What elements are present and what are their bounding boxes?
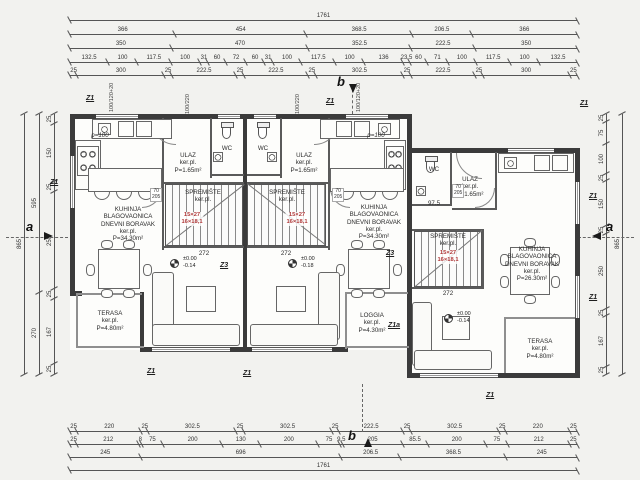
section-arrow-a-left <box>44 232 53 240</box>
glass-door-living-left <box>152 347 230 352</box>
dim-chain-left-2: 595270 <box>29 114 40 375</box>
tag-z1-west: Z1 <box>50 179 58 186</box>
dim-chain-top-overall: 1761 <box>70 10 578 21</box>
coffee-table-unit1 <box>186 286 216 312</box>
room-label-living-unit2: KUHINJA BLAGOVAONICA DNEVNI BORAVAK ker.… <box>339 204 409 241</box>
sofa-unit3-horizontal <box>414 350 492 370</box>
sink-wc-unit2 <box>267 152 277 162</box>
sink-wc-unit3 <box>416 186 426 196</box>
room-label-ulaz-unit2: ULAZ ker.pl. P=1.65m² <box>282 152 326 174</box>
chair <box>524 295 536 304</box>
door-size-tag-unit2: 70 205 <box>332 188 344 202</box>
section-letter-a-left: a <box>26 219 33 234</box>
unit1-wc-south-wall <box>210 174 244 176</box>
level-marker-unit1 <box>170 259 179 268</box>
chair <box>86 264 95 276</box>
chair <box>373 240 385 249</box>
dim-chain-right-detail: 257510025150252502516725 <box>596 114 607 375</box>
tag-z1-bottom-mid: Z1 <box>243 370 251 377</box>
wall-terrace-east <box>140 292 144 352</box>
dining-table-unit2 <box>348 249 390 289</box>
tag-z3-right: Z3 <box>386 250 394 257</box>
door-size-tag-unit1: 70 205 <box>150 188 162 202</box>
section-arrow-a-right <box>592 232 601 240</box>
kitchen-sink-unit3 <box>504 157 517 169</box>
stairs-unit2-step-note: 15×27 16×18,1 <box>285 212 308 226</box>
room-label-living-unit1: KUHINJA BLAGOVAONICA DNEVNI BORAVAK ker.… <box>93 206 163 243</box>
chair <box>101 289 113 298</box>
dim-chain-right-overall: 865 <box>612 114 623 375</box>
dim-chain-left-overall: 865 <box>14 114 25 375</box>
dim-chain-bottom-walls: 2522025302.525302.525222.525302.52522025 <box>70 421 578 432</box>
room-label-wc-unit1: WC <box>222 145 232 152</box>
tag-z1-top-left: Z1 <box>86 95 94 102</box>
unit1-stair-south-wall <box>162 246 244 248</box>
dim-chain-top-2: 366454368.5206.5366 <box>70 24 578 35</box>
dining-group-unit2 <box>336 240 402 298</box>
sofa-unit1-horizontal <box>152 324 240 346</box>
section-line-b-bottom <box>362 384 363 432</box>
unit2-stair-south-wall <box>247 246 329 248</box>
glass-door-living-mid <box>252 347 332 352</box>
dining-group-unit1 <box>86 240 152 298</box>
window-size-rotated-2: 100/220 <box>186 86 192 114</box>
chair <box>351 289 363 298</box>
dim-chain-bottom-3: 245696206.5368.5245 <box>70 447 578 458</box>
sink-wc-unit1 <box>213 152 223 162</box>
kitchen-appliance-unit3-b <box>552 155 568 171</box>
level-text-unit1: ±0.00 -0.14 <box>183 256 197 269</box>
stairs-unit1-step-note: 15×27 16×18,1 <box>180 212 203 226</box>
kitchen-appliance-unit3-a <box>534 155 550 171</box>
tag-z1-top-mid: Z1 <box>326 98 334 105</box>
toilet-unit1 <box>222 126 231 139</box>
room-label-living-unit3: KUHINJA BLAGOVAONICA DNEVNI BORAVAK ker.… <box>497 246 567 283</box>
section-line-a-left <box>6 237 68 238</box>
room-label-ulaz-unit1: ULAZ ker.pl. P=1.65m² <box>166 152 210 174</box>
section-letter-b-top: b <box>337 74 345 89</box>
terrace-right-west-wall <box>504 317 506 373</box>
dim-chain-top-walls: 2530025222.525222.525302.525222.52530025 <box>70 65 578 76</box>
terrace-left-south-wall <box>76 346 144 348</box>
unit3-stair-south-wall <box>412 287 484 289</box>
sofa-unit2-horizontal <box>250 324 338 346</box>
tag-z1-top-right: Z1 <box>580 100 588 107</box>
dim-chain-bottom-overall: 1761 <box>70 460 578 471</box>
section-arrow-b-bottom <box>364 438 372 447</box>
coffee-table-unit2 <box>276 286 306 312</box>
chair <box>123 289 135 298</box>
level-marker-unit2 <box>288 259 297 268</box>
dim-97-5-unit3: 97.5 <box>428 200 440 207</box>
kitchen-appliance-unit1-a <box>118 121 134 137</box>
room-label-spremiste-unit1: SPREMIŠTE ker.pl. <box>178 189 228 204</box>
floor-plan-canvas: 1761 366454368.5206.5366 350470352.5222.… <box>0 0 640 480</box>
unit3-stair-east-wall <box>482 229 484 289</box>
chair <box>351 240 363 249</box>
level-text-unit3: ±0.00 -0.14 <box>457 311 471 324</box>
chair <box>143 264 152 276</box>
unit3-hall-east-wall <box>495 152 497 210</box>
window-east-upper <box>575 182 580 224</box>
dining-table-unit1 <box>98 249 140 289</box>
level-text-unit2: ±0.00 -0.18 <box>301 256 315 269</box>
unit3-hall-south-wall <box>452 208 497 210</box>
section-line-a-right <box>578 237 634 238</box>
tag-z1-east-lower: Z1 <box>589 294 597 301</box>
door-size-tag-unit3: 70 205 <box>452 184 464 198</box>
window-wc1 <box>218 114 240 119</box>
window-east-lower <box>575 276 580 318</box>
kitchen-appliance-unit2-a <box>336 121 352 137</box>
room-label-wc-unit2: WC <box>258 145 268 152</box>
parapet-note-unit1: p=100 <box>91 132 108 139</box>
dim-272-unit1: 272 <box>199 250 209 257</box>
terrace-right-north-wall <box>504 317 575 319</box>
unit1-wc-west-wall <box>210 118 212 178</box>
section-letter-a-right: a <box>606 219 613 234</box>
tag-z1-east-upper: Z1 <box>589 193 597 200</box>
dim-chain-top-3: 350470352.5222.5350 <box>70 38 578 49</box>
room-label-terasa-left: TERASA ker.pl. P=4.80m² <box>85 310 135 332</box>
kitchen-appliance-unit1-b <box>136 121 152 137</box>
window-size-rotated-1: 100/120+20 <box>110 84 116 112</box>
dim-272-unit2: 272 <box>281 250 291 257</box>
window-size-rotated-4: 100/120+20 <box>357 84 363 112</box>
stairs-unit3-step-note: 15×27 16×18,1 <box>436 250 459 264</box>
room-label-spremiste-unit2: SPREMIŠTE ker.pl. <box>262 189 312 204</box>
room-label-spremiste-unit3: SPREMIŠTE ker.pl. <box>423 233 473 248</box>
dim-272-unit3: 272 <box>443 290 453 297</box>
parapet-note-unit2: p=100 <box>367 132 384 139</box>
chair <box>373 289 385 298</box>
dim-chain-left-detail: 25150252502516725 <box>44 114 55 375</box>
dim-chain-bottom-detail: 25212875200130200759.520585.52007521225 <box>70 434 578 445</box>
tag-z1-bottom-left: Z1 <box>147 368 155 375</box>
unit2-wc-south-wall <box>247 174 282 176</box>
loggia-south-wall <box>345 346 409 348</box>
toilet-unit2 <box>258 126 267 139</box>
dim-chain-top-detail: 132.5100117.51003160726031100117.5100136… <box>70 52 578 63</box>
glass-door-living-right <box>420 373 498 378</box>
room-label-wc-unit3: WC <box>429 166 439 173</box>
tag-z1a-loggia: Z1a <box>388 322 400 329</box>
window-size-rotated-3: 100/220 <box>296 86 302 114</box>
chair <box>393 264 402 276</box>
terrace-left-west-wall <box>76 293 78 348</box>
section-letter-b-bottom: b <box>348 428 356 443</box>
tag-z3-left: Z3 <box>220 262 228 269</box>
level-marker-unit3 <box>444 314 453 323</box>
room-label-terasa-right: TERASA ker.pl. P=4.80m² <box>515 338 565 360</box>
window-wc2 <box>254 114 276 119</box>
tag-z1-bottom-right: Z1 <box>486 392 494 399</box>
